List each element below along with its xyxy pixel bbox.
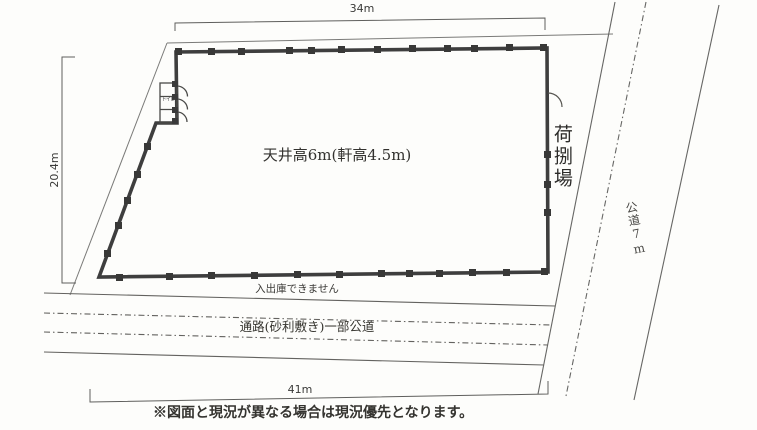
no-access-label: 入出庫できません [233, 284, 361, 296]
dimension-label-bottom: 41m [272, 384, 328, 396]
site-plan: 34m 20.4m 41m 天井高6m(軒高4.5m) 荷捌場 公道7m 入出庫… [0, 0, 757, 430]
toilet-door-arc [177, 86, 188, 97]
road-bottom-edge-2 [44, 352, 544, 365]
property-boundary-line [70, 34, 613, 295]
site-plan-drawing [0, 0, 757, 430]
road-right-left-edge [538, 2, 615, 394]
dimension-label-left: 20.4m [49, 140, 63, 200]
passage-label: 通路(砂利敷き)一部公道 [227, 320, 387, 334]
loading-door-arc [548, 93, 562, 107]
dimension-bracket-left [62, 57, 76, 283]
toilet-label: トイレ [159, 97, 177, 103]
dimension-label-top: 34m [337, 3, 387, 15]
road-right-center-dashed [566, 2, 646, 396]
disclaimer-note: ※図面と現況が異なる場合は現況優先となります。 [153, 406, 455, 421]
road-right-right-edge [634, 5, 719, 400]
dimension-bracket-top [175, 18, 545, 31]
ceiling-height-label: 天井高6m(軒高4.5m) [252, 147, 422, 164]
loading-dock-label: 荷捌場 [551, 124, 572, 214]
